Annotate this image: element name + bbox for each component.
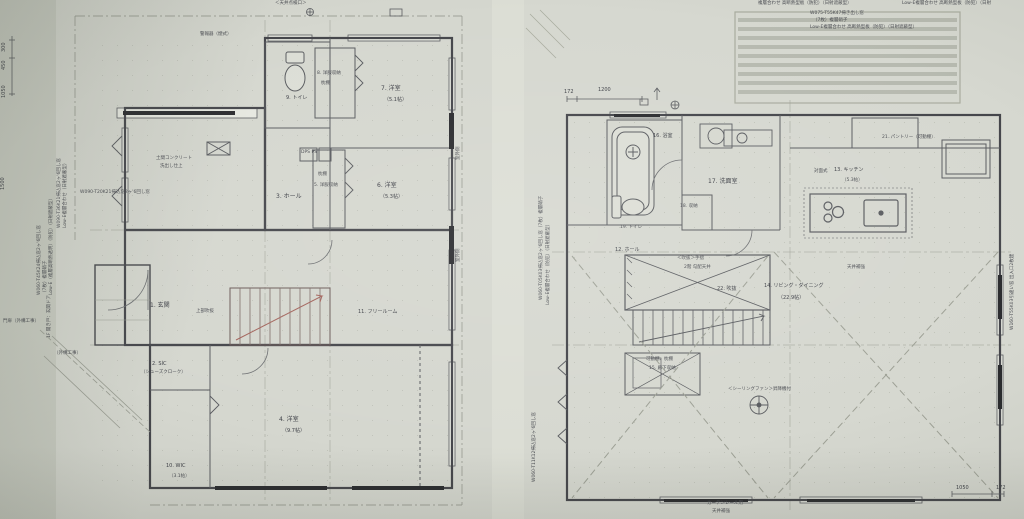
annotation-void-above: 上部吹抜 <box>196 310 214 315</box>
annotation-curtain-rail: カーテンレール用 <box>707 502 743 507</box>
room-label-kitchen-size: （5.3帖） <box>842 179 863 184</box>
room-label-closet8-sub: 枕棚 <box>321 82 330 87</box>
dimension-1500: 1500 <box>1 177 6 190</box>
annotation-ceiling-access: ＜天井点検口＞ <box>275 2 307 7</box>
annotation-window-spec-block-2: （7枚）複層硝子 <box>813 19 847 24</box>
second-floor-linework <box>512 0 1024 519</box>
annotation-window-spec-2b: Low-E複層合わせ（日射遮蔽型） <box>64 161 69 228</box>
annotation-window-spec-1c: Low-E（複層高断熱透明）（防犯）（日射遮蔽型） <box>50 196 55 295</box>
floorplan-photo: 1. 玄関 2. SIC （シューズクローク） 3. ホール 4. 洋室 （9.… <box>0 0 1024 519</box>
annotation-window-spec-2a: W090-T36K21掃込窓2ヶ'6回し窓 <box>58 158 63 228</box>
annotation-right-window-spec: W160-T55K03引違い窓 出入口2枚建 <box>1011 254 1016 330</box>
annotation-entrance-door: 1F 開き戸：玄関ドア <box>48 295 53 338</box>
room-label-free-room: 11. フリールーム <box>358 310 397 315</box>
annotation-outside-b: 室外側 <box>457 249 462 263</box>
annotation-doma-finish: 洗出し仕上 <box>160 165 183 170</box>
annotation-outside-a: 室外側 <box>457 147 462 161</box>
room-label-bedroom7-size: （5.1帖） <box>384 98 407 103</box>
annotation-doma-concrete: 土間コンクリート <box>156 157 192 162</box>
annotation-gate: 門扉（外構工事） <box>3 320 39 325</box>
dimension-300: 300 <box>2 42 7 52</box>
annotation-void-handrail: ＜吹抜＞手摺 <box>677 257 704 262</box>
room-label-pantry: 21. パントリー（可動棚） <box>882 136 936 141</box>
room-label-living: 14. リビング・ダイニング <box>764 284 824 289</box>
dimension-172b: 172 <box>996 486 1006 491</box>
second-floor-plan: 16. 浴室 17. 洗面室 18. 収納 19. トイレ 12. ホール 対面… <box>512 0 1024 519</box>
annotation-left-window-spec-2: Low-E複層合わせ（防犯）（日射遮蔽型） <box>547 222 552 305</box>
annotation-pipe-space: DPS PS <box>301 151 317 156</box>
room-label-closet5: 5. 洋服収納 <box>314 184 338 189</box>
room-label-closet5-sub: 枕棚 <box>318 173 327 178</box>
ceiling-fan-icon <box>750 396 768 414</box>
room-label-bedroom6-size: （5.3帖） <box>380 195 403 200</box>
room-label-toilet: 9. トイレ <box>286 96 307 101</box>
dimension-1050: 1050 <box>2 85 7 98</box>
dimension-1050: 1050 <box>956 486 969 491</box>
annotation-window-spec-3: W090-T20K21掃込窓2ヶ'6回し窓 <box>80 191 150 196</box>
annotation-left-window-spec-3: W060-T11K12掃込窓2ヶ'6回し窓 <box>533 412 538 482</box>
room-label-closet8: 8. 洋服収納 <box>317 72 341 77</box>
dimension-1200: 1200 <box>598 88 611 93</box>
room-label-void: 22. 吹抜 <box>717 287 737 292</box>
room-label-washroom: 17. 洗面室 <box>708 179 737 185</box>
annotation-ceiling-reinforce: 天井補強 <box>847 266 865 271</box>
room-label-toilet: 19. トイレ <box>620 226 642 231</box>
room-label-bedroom6: 6. 洋室 <box>377 183 397 189</box>
room-label-storage18: 18. 収納 <box>680 205 698 210</box>
kitchen-island <box>804 188 912 238</box>
room-label-kitchen-type: 対面式 <box>814 170 828 175</box>
room-label-living-size: （22.9帖） <box>778 296 804 301</box>
room-label-kitchen: 13. キッチン <box>834 168 864 173</box>
room-label-genkan: 1. 玄関 <box>150 303 170 309</box>
room-label-wic-size: （3.1帖） <box>169 475 190 480</box>
annotation-exterior-work: （外構工事） <box>54 352 81 357</box>
room-label-closet15-sub: 可動棚、枕棚 <box>646 358 673 363</box>
room-label-bath: 16. 浴室 <box>653 134 673 139</box>
room-label-wic: 10. WIC <box>166 464 185 469</box>
room-label-closet15: 15. 廊下収納 <box>649 367 676 372</box>
annotation-window-spec-block-1: W075-T55K47掃き出し窓 <box>810 12 864 17</box>
annotation-glass-spec-top-2: Low-E複層合わせ 高断熱型板（防犯）（日射 <box>902 2 991 7</box>
dimension-172: 172 <box>564 90 574 95</box>
room-label-sic-sub: （シューズクローク） <box>141 371 186 376</box>
room-label-hall: 12. ホール <box>615 248 640 253</box>
annotation-glass-spec-top-1: 複層合わせ 高断熱型板（防犯）（日射遮蔽型） <box>758 2 852 7</box>
annotation-ceiling-fan: ＜シーリングファン＞昇降機付 <box>728 388 791 393</box>
annotation-smoke-alarm: 警報器（煙式） <box>200 33 232 38</box>
room-label-bedroom7: 7. 洋室 <box>381 86 401 92</box>
room-label-hall: 3. ホール <box>276 194 302 200</box>
first-floor-plan: 1. 玄関 2. SIC （シューズクローク） 3. ホール 4. 洋室 （9.… <box>0 0 512 519</box>
annotation-window-spec-1a: W060-T45K24掃込窓2ヶ'6回し窓 <box>38 225 43 295</box>
dimension-450: 450 <box>2 60 7 70</box>
annotation-window-spec-1b: （7枚）複層硝子 <box>44 261 49 295</box>
room-label-bedroom4-size: （9.7帖） <box>282 429 305 434</box>
staircase-icon <box>230 288 330 345</box>
room-label-bedroom4: 4. 洋室 <box>279 417 299 423</box>
annotation-sloped-ceiling: 2階 勾配天井 <box>684 266 711 271</box>
toilet-icon <box>285 52 305 91</box>
annotation-window-spec-block-3: Low-E複層合わせ 高断熱型板（防犯）（日射遮蔽型） <box>810 26 917 31</box>
annotation-curtain-rail-2: 天井補強 <box>712 510 730 515</box>
first-floor-linework <box>0 0 512 519</box>
annotation-left-window-spec-1: W060-T05K03掃込窓2ヶ'6回し窓（7枚）複層硝子 <box>540 196 545 300</box>
room-label-sic: 2. SIC <box>152 362 167 367</box>
